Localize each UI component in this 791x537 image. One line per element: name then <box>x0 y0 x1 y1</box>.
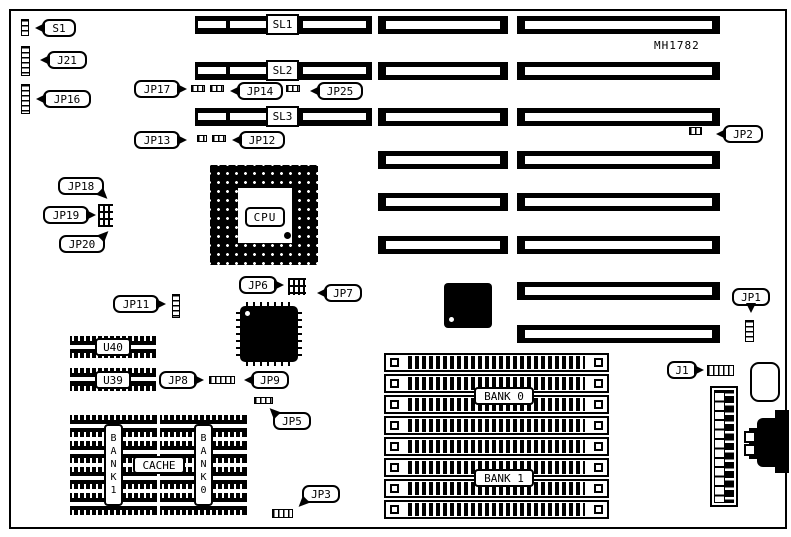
power-connector-pins <box>725 390 734 503</box>
cache-label-box: CACHE <box>133 456 185 474</box>
slot-sl3: SL3 <box>195 108 372 126</box>
dip-pins <box>162 415 245 420</box>
sl2-text: SL2 <box>273 64 293 77</box>
simm-pin-slots <box>408 419 585 432</box>
simm-latch <box>594 484 603 493</box>
simm-latch <box>594 400 603 409</box>
simm-latch <box>390 358 399 367</box>
expansion-slot <box>378 16 508 34</box>
bank1-text: BANK 1 <box>484 472 524 485</box>
jp18-jp19-jp20-block <box>98 204 113 227</box>
pointer-tail <box>194 375 204 385</box>
pointer-tail <box>35 23 45 33</box>
callout-jp19: JP19 <box>43 206 89 224</box>
mounting-outline <box>750 362 780 402</box>
pointer-tail <box>36 94 46 104</box>
callout-jp1-label: JP1 <box>741 291 761 304</box>
callout-jp25: JP25 <box>317 82 363 100</box>
callout-jp11: JP11 <box>113 295 159 313</box>
jp1-jumper <box>745 320 754 342</box>
dip-pins <box>162 510 245 515</box>
slot-segment <box>303 21 366 28</box>
callout-j1-label: J1 <box>675 364 688 377</box>
callout-jp1: JP1 <box>732 288 770 306</box>
simm-latch <box>390 484 399 493</box>
motherboard-layout-diagram: MH1782 S1 J21 JP16 SL1 SL2 SL3 JP17 <box>0 0 791 537</box>
simm-latch <box>594 442 603 451</box>
slot-segment <box>230 67 267 74</box>
simm-latch <box>390 421 399 430</box>
expansion-slot <box>517 325 720 343</box>
callout-jp5-label: JP5 <box>282 415 302 428</box>
chip-u40: U40 <box>70 336 156 358</box>
expansion-slot <box>517 236 720 254</box>
callout-jp12-label: JP12 <box>249 134 276 147</box>
expansion-slot <box>378 193 508 211</box>
pointer-tail <box>310 86 320 96</box>
callout-jp17: JP17 <box>134 80 180 98</box>
qfp-chip <box>236 302 302 366</box>
jp2-jumper <box>689 127 702 135</box>
pointer-tail <box>317 288 327 298</box>
simm-pin-slots <box>408 503 585 516</box>
simm-socket <box>384 416 609 435</box>
expansion-slot <box>517 151 720 169</box>
expansion-slot <box>517 282 720 300</box>
slot-label-sl1: SL1 <box>266 14 299 35</box>
slot-segment <box>198 21 226 28</box>
pointer-tail <box>86 210 96 220</box>
slot-label-sl3: SL3 <box>266 106 299 127</box>
bank0-column-text: BANK0 <box>198 433 209 498</box>
jp12-jumper <box>212 135 226 142</box>
simm-latch <box>594 505 603 514</box>
callout-jp7-label: JP7 <box>333 287 353 300</box>
din-notch <box>744 444 756 456</box>
expansion-slot <box>517 193 720 211</box>
jp6-jp7-block <box>288 278 306 295</box>
bank0-label-box: BANK 0 <box>474 387 534 405</box>
sl1-text: SL1 <box>273 18 293 31</box>
cpu-socket-cavity: CPU <box>238 188 292 243</box>
simm-latch <box>594 358 603 367</box>
pointer-tail <box>177 84 187 94</box>
keyboard-din-connector-step <box>775 465 789 473</box>
callout-jp8-label: JP8 <box>168 374 188 387</box>
simm-socket <box>384 353 609 372</box>
callout-jp14-label: JP14 <box>247 85 274 98</box>
simm-pin-slots <box>408 440 585 453</box>
expansion-slot <box>517 108 720 126</box>
callout-jp14: JP14 <box>237 82 283 100</box>
jp16-connector <box>21 84 30 114</box>
u40-label-box: U40 <box>95 338 131 356</box>
callout-jp20: JP20 <box>59 235 105 253</box>
slot-segment <box>303 67 366 74</box>
jp14-jumper <box>210 85 224 92</box>
slot-segment <box>303 113 366 120</box>
bank0-text: BANK 0 <box>484 390 524 403</box>
callout-jp9-label: JP9 <box>260 374 280 387</box>
pointer-tail <box>232 135 242 145</box>
simm-latch <box>390 442 399 451</box>
slot-segment <box>230 21 267 28</box>
simm-pin-slots <box>408 356 585 369</box>
power-connector <box>710 386 738 507</box>
simm-latch <box>594 379 603 388</box>
power-connector-pins <box>714 390 725 503</box>
callout-jp13: JP13 <box>134 131 180 149</box>
callout-jp6: JP6 <box>239 276 277 294</box>
callout-jp17-label: JP17 <box>144 83 171 96</box>
callout-jp12: JP12 <box>239 131 285 149</box>
slot-segment <box>198 67 226 74</box>
callout-j21-label: J21 <box>57 54 77 67</box>
simm-socket <box>384 437 609 456</box>
chip-body <box>240 306 298 362</box>
cache-text: CACHE <box>142 459 175 472</box>
callout-s1: S1 <box>42 19 76 37</box>
pointer-tail <box>230 86 240 96</box>
slot-segment <box>198 113 226 120</box>
pin1-dot <box>449 317 454 322</box>
keyboard-din-connector-step <box>775 410 789 420</box>
j1-connector <box>707 365 734 376</box>
callout-jp18: JP18 <box>58 177 104 195</box>
callout-jp25-label: JP25 <box>327 85 354 98</box>
bank1-label-box: BANK 1 <box>474 469 534 487</box>
callout-jp16-label: JP16 <box>54 93 81 106</box>
callout-j1: J1 <box>667 361 697 379</box>
slot-sl1: SL1 <box>195 16 372 34</box>
dip-pins <box>72 510 155 515</box>
slot-segment <box>230 113 267 120</box>
board-part-number: MH1782 <box>654 39 700 52</box>
callout-jp16: JP16 <box>43 90 91 108</box>
callout-jp11-label: JP11 <box>123 298 150 311</box>
callout-jp5: JP5 <box>273 412 311 430</box>
cpu-label-box: CPU <box>245 207 285 227</box>
pointer-tail <box>177 135 187 145</box>
u39-text: U39 <box>103 374 123 387</box>
chip-u39: U39 <box>70 368 156 391</box>
callout-jp7: JP7 <box>324 284 362 302</box>
simm-socket <box>384 500 609 519</box>
callout-jp3-label: JP3 <box>311 488 331 501</box>
jp17-jumper <box>191 85 205 92</box>
simm-latch <box>594 421 603 430</box>
keyboard-din-connector <box>757 418 789 467</box>
callout-jp20-label: JP20 <box>69 238 96 251</box>
din-notch <box>744 431 756 443</box>
simm-latch <box>390 463 399 472</box>
u40-text: U40 <box>103 341 123 354</box>
callout-jp8: JP8 <box>159 371 197 389</box>
callout-jp19-label: JP19 <box>53 209 80 222</box>
bank1-column-text: BANK1 <box>108 433 119 498</box>
bank1-column-label: BANK1 <box>104 424 123 506</box>
sl3-text: SL3 <box>273 110 293 123</box>
expansion-slot <box>378 151 508 169</box>
expansion-slot <box>517 16 720 34</box>
callout-jp9: JP9 <box>251 371 289 389</box>
pointer-tail <box>694 365 704 375</box>
simm-latch <box>390 400 399 409</box>
callout-jp3: JP3 <box>302 485 340 503</box>
cpu-text: CPU <box>254 211 277 224</box>
slot-sl2: SL2 <box>195 62 372 80</box>
j21-connector <box>21 46 30 76</box>
callout-jp2: JP2 <box>723 125 763 143</box>
pointer-tail <box>274 280 284 290</box>
callout-jp18-label: JP18 <box>68 180 95 193</box>
expansion-slot <box>378 108 508 126</box>
callout-jp13-label: JP13 <box>144 134 171 147</box>
simm-latch <box>594 463 603 472</box>
u39-label-box: U39 <box>95 371 131 389</box>
simm-latch <box>390 505 399 514</box>
callout-jp2-label: JP2 <box>733 128 753 141</box>
pointer-tail <box>244 375 254 385</box>
pointer-tail <box>156 299 166 309</box>
controller-chip <box>444 283 492 328</box>
pointer-tail <box>746 303 756 313</box>
pointer-tail <box>716 129 726 139</box>
callout-s1-label: S1 <box>52 22 65 35</box>
pin1-dot <box>245 311 250 316</box>
chip-pins <box>298 312 302 356</box>
jp5-jumper <box>254 397 273 404</box>
jp25-jumper <box>286 85 300 92</box>
chip-pins <box>246 362 292 366</box>
pin1-dot <box>284 232 291 239</box>
dip-pins <box>72 415 155 420</box>
s1-switch <box>21 19 29 36</box>
expansion-slot <box>517 62 720 80</box>
pointer-tail <box>40 55 50 65</box>
callout-jp6-label: JP6 <box>248 279 268 292</box>
jp13-jumper <box>197 135 207 142</box>
jp8-jp9-jumper <box>209 376 235 384</box>
simm-latch <box>390 379 399 388</box>
cpu-socket: CPU <box>210 165 318 265</box>
jp3-jumper <box>272 509 293 518</box>
slot-label-sl2: SL2 <box>266 60 299 81</box>
expansion-slot <box>378 236 508 254</box>
bank0-column-label: BANK0 <box>194 424 213 506</box>
callout-j21: J21 <box>47 51 87 69</box>
expansion-slot <box>378 62 508 80</box>
jp11-jumper <box>172 294 180 318</box>
